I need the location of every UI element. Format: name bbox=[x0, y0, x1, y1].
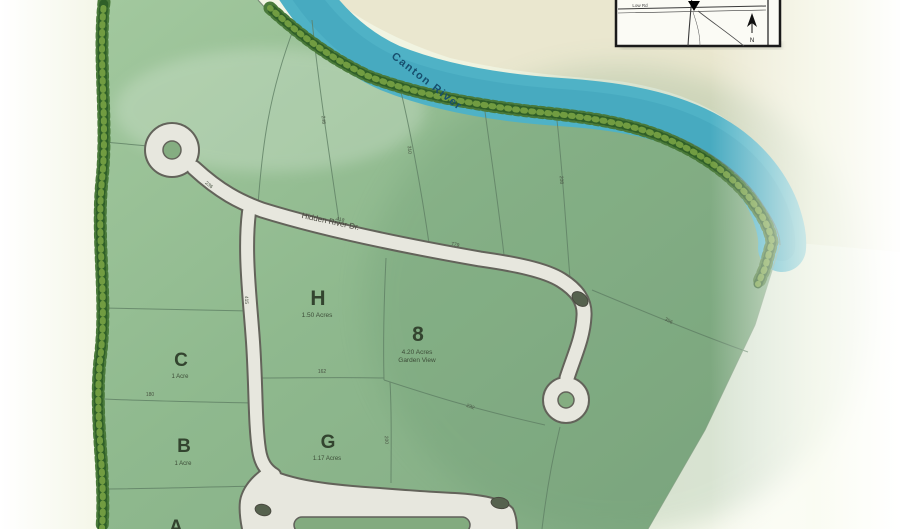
lot-c-label: C bbox=[174, 350, 188, 371]
cul-de-sac-island bbox=[163, 141, 181, 159]
left-edge-trees bbox=[98, 2, 104, 529]
dimension-label: 208 bbox=[558, 176, 564, 185]
dimension-label: 310 bbox=[406, 145, 413, 154]
dimension-label: 415 bbox=[243, 296, 249, 305]
lot-h-area: 1.50 Acres bbox=[302, 312, 333, 319]
lot-b-area: 1 Acre bbox=[174, 461, 192, 467]
lot-g-area: 1.17 Acres bbox=[313, 456, 341, 462]
dimension-label: 180 bbox=[146, 392, 155, 398]
entrance-median bbox=[294, 517, 470, 529]
inset-map: N Low Rd bbox=[616, 0, 782, 49]
plat-map-image: 236 418 779 248 310 208 356 415 232 162 … bbox=[0, 0, 900, 529]
plat-map-svg: 236 418 779 248 310 208 356 415 232 162 … bbox=[0, 0, 900, 529]
lot-8-label: 8 bbox=[412, 323, 424, 346]
cul-de-sac-island bbox=[558, 392, 574, 408]
lot-8-note: Garden View bbox=[398, 357, 436, 364]
lot-b-label: B bbox=[177, 436, 191, 457]
right-vignette bbox=[710, 0, 900, 529]
lot-c-area: 1 Acre bbox=[171, 374, 189, 380]
inset-north-label: N bbox=[750, 38, 754, 44]
lot-h-label: H bbox=[310, 287, 325, 310]
lot-g-label: G bbox=[321, 432, 336, 453]
inset-road-label: Low Rd bbox=[632, 3, 648, 8]
lot-a-label: A bbox=[169, 517, 183, 529]
dimension-label: 162 bbox=[318, 369, 327, 375]
dimension-label: 200 bbox=[383, 436, 389, 445]
dimension-label: 248 bbox=[320, 115, 327, 124]
lot-8-area: 4.20 Acres bbox=[402, 349, 433, 356]
